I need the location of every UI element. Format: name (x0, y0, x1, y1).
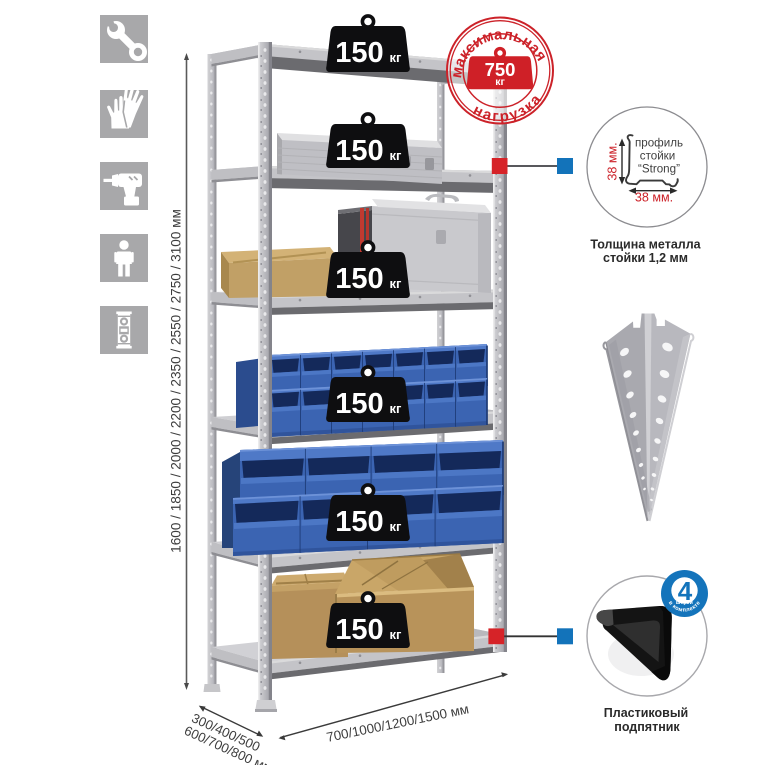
svg-text:стойки 1,2 мм: стойки 1,2 мм (603, 251, 688, 265)
svg-text:кг: кг (390, 148, 403, 163)
svg-text:“Strong”: “Strong” (638, 163, 680, 176)
svg-text:кг: кг (390, 627, 403, 642)
svg-text:кг: кг (390, 276, 403, 291)
svg-text:150: 150 (335, 614, 383, 646)
svg-text:38 мм.: 38 мм. (606, 142, 620, 180)
svg-text:кг: кг (495, 76, 505, 88)
svg-text:кг: кг (390, 50, 403, 65)
svg-text:150: 150 (335, 135, 383, 167)
svg-text:150: 150 (335, 263, 383, 295)
svg-text:150: 150 (335, 506, 383, 538)
svg-text:кг: кг (390, 401, 403, 416)
svg-text:150: 150 (335, 37, 383, 69)
svg-text:кг: кг (390, 519, 403, 534)
svg-text:150: 150 (335, 388, 383, 420)
svg-text:1600 / 1850 / 2000 / 2200 / 23: 1600 / 1850 / 2000 / 2200 / 2350 / 2550 … (169, 209, 184, 553)
svg-text:Пластиковый: Пластиковый (604, 706, 688, 720)
svg-text:профиль: профиль (635, 137, 683, 150)
svg-text:подпятник: подпятник (614, 720, 680, 734)
svg-text:Толщина металла: Толщина металла (590, 237, 701, 251)
svg-text:стойки: стойки (640, 150, 675, 163)
svg-text:38 мм.: 38 мм. (635, 191, 673, 205)
svg-text:штуки: штуки (676, 600, 693, 606)
